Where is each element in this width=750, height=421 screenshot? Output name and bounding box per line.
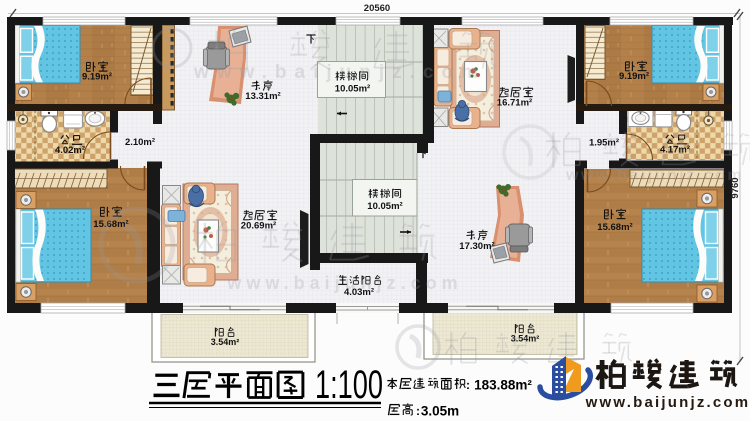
svg-text:15.68m²: 15.68m² xyxy=(597,222,632,233)
svg-text:3.54m²: 3.54m² xyxy=(211,337,240,347)
svg-text:16.71m²: 16.71m² xyxy=(497,98,532,109)
svg-text::: : xyxy=(466,378,470,392)
svg-text:www.baijunjz.com: www.baijunjz.com xyxy=(585,394,750,411)
svg-text:www.baijunjz.com: www.baijunjz.com xyxy=(193,62,486,83)
svg-text:9.19m²: 9.19m² xyxy=(619,71,649,82)
svg-text:183.88m²: 183.88m² xyxy=(474,378,532,393)
svg-text:4.02m²: 4.02m² xyxy=(55,145,85,156)
svg-text:9760: 9760 xyxy=(730,177,741,198)
svg-text:www.baijunjz.com: www.baijunjz.com xyxy=(565,167,744,184)
svg-text:www.baijunjz.com: www.baijunjz.com xyxy=(226,273,462,293)
svg-text:3.05m: 3.05m xyxy=(421,404,459,419)
svg-text:10.05m²: 10.05m² xyxy=(335,84,370,95)
svg-text:9.19m²: 9.19m² xyxy=(82,72,112,83)
svg-text:2.10m²: 2.10m² xyxy=(125,137,155,148)
svg-text:17.30m²: 17.30m² xyxy=(459,241,494,252)
svg-text:20560: 20560 xyxy=(364,3,390,14)
svg-text:1:100: 1:100 xyxy=(315,363,383,407)
svg-text:13.31m²: 13.31m² xyxy=(245,91,280,102)
svg-text:10.05m²: 10.05m² xyxy=(367,201,402,212)
svg-text::: : xyxy=(416,404,420,418)
